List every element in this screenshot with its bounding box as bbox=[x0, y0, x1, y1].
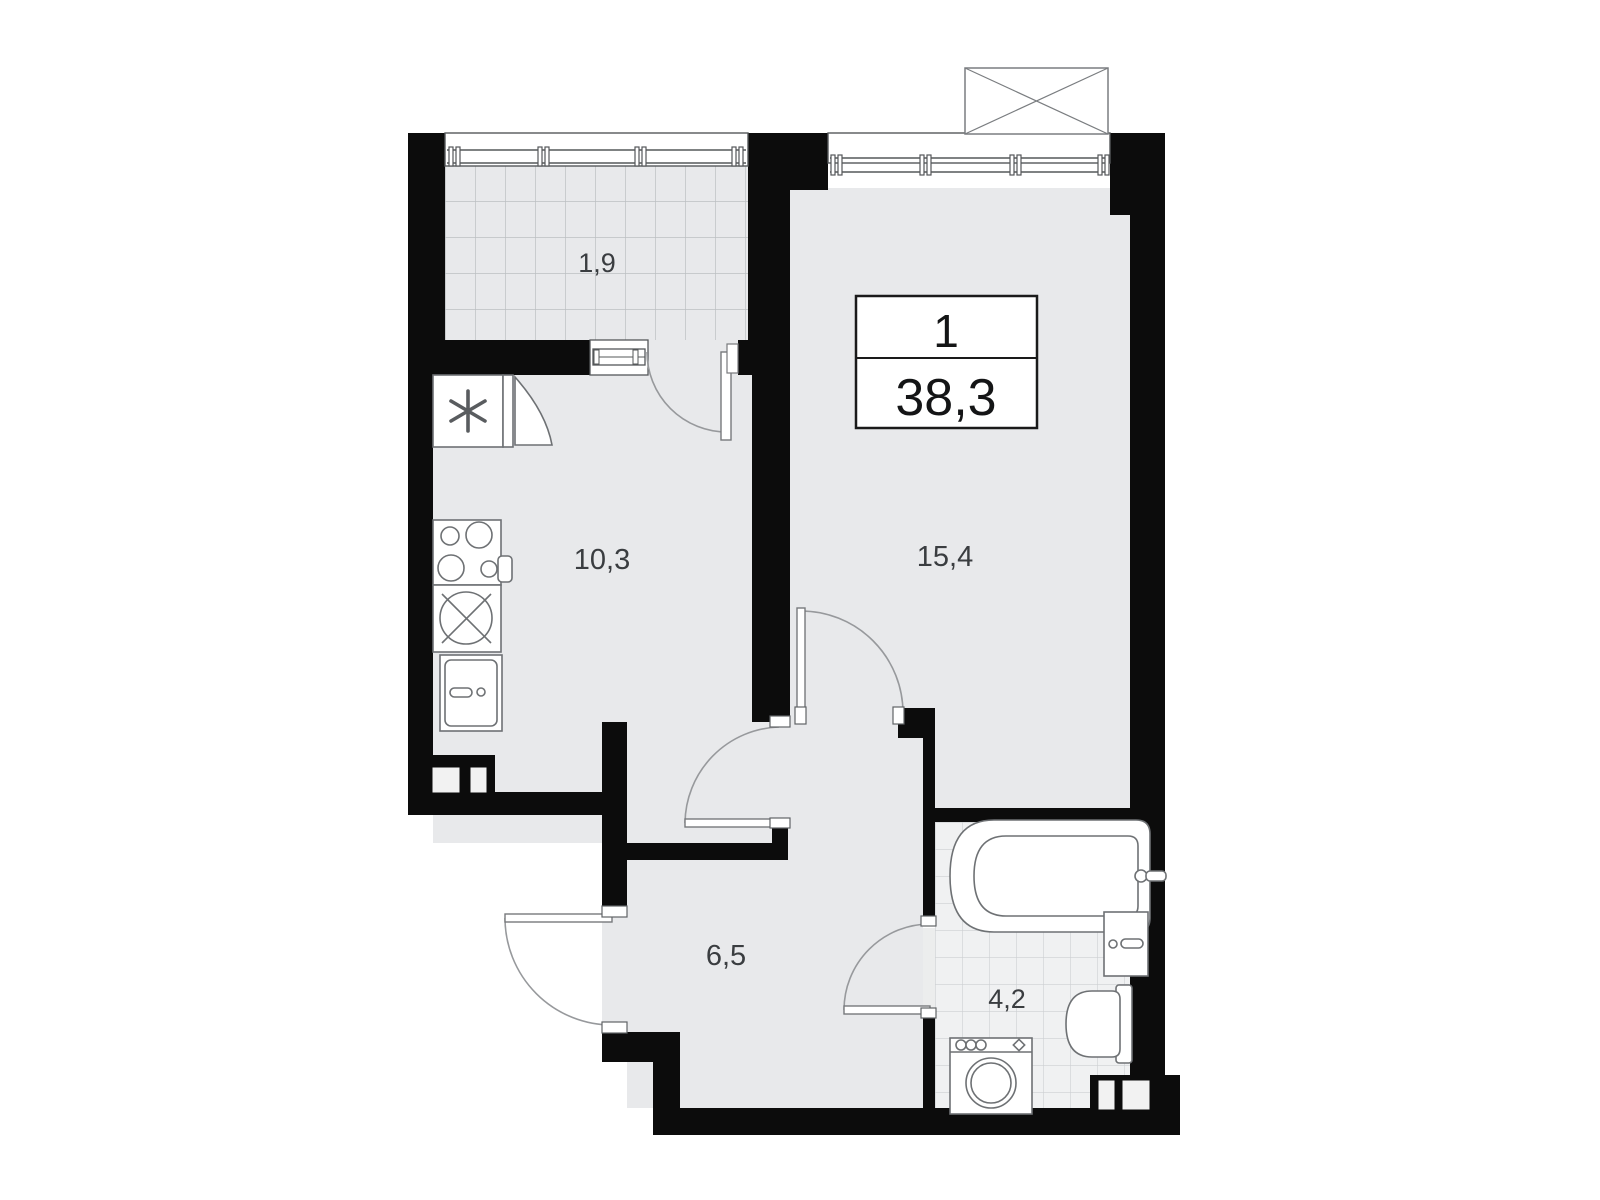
wall-right-outer bbox=[1130, 160, 1165, 1135]
wall-hall-left-upper bbox=[602, 722, 627, 913]
toilet-icon bbox=[1066, 985, 1132, 1063]
washing-machine-icon bbox=[950, 1038, 1032, 1114]
washbasin-icon bbox=[1104, 912, 1148, 976]
bath-door-threshold bbox=[923, 928, 935, 1018]
living-area-label: 15,4 bbox=[917, 541, 973, 573]
kitchen-sink-icon bbox=[433, 585, 501, 652]
bathroom-shaft-duct-icon bbox=[1098, 1080, 1115, 1110]
wall-step-horizontal bbox=[602, 1032, 680, 1062]
floor-plan-page: 1,9 10,3 15,4 6,5 4,2 1 38,3 bbox=[0, 0, 1600, 1200]
floor-plan-svg: 1,9 10,3 15,4 6,5 4,2 1 38,3 bbox=[0, 0, 1600, 1200]
kitchen-shaft-duct-icon bbox=[432, 767, 460, 793]
balcony-area-label: 1,9 bbox=[578, 248, 616, 278]
living-room-floor bbox=[790, 188, 1130, 808]
bathroom-shaft-duct-icon bbox=[1122, 1080, 1150, 1110]
kitchen-shaft-duct-icon bbox=[470, 767, 487, 793]
wall-kitchen-living-divider bbox=[752, 133, 790, 722]
wall-balcony-bottom-left bbox=[408, 340, 592, 375]
balcony-window-icon bbox=[445, 133, 748, 166]
wall-bath-left-mid bbox=[923, 822, 935, 922]
stove-icon bbox=[433, 520, 512, 585]
vent-box-icon bbox=[965, 68, 1108, 134]
kitchen-balcony-window-icon bbox=[590, 340, 648, 375]
wall-bath-left-upper bbox=[923, 727, 935, 822]
kitchen-area-label: 10,3 bbox=[574, 544, 630, 576]
wall-balcony-left bbox=[408, 133, 445, 375]
wall-left-outer bbox=[408, 375, 433, 755]
rooms-count-label: 1 bbox=[933, 305, 959, 357]
living-window-icon bbox=[828, 133, 1110, 175]
total-area-label: 38,3 bbox=[895, 369, 996, 427]
wall-kitchen-bottom bbox=[433, 792, 627, 815]
wall-bath-left-lower bbox=[923, 1016, 935, 1115]
kitchen-cabinet-icon bbox=[440, 655, 502, 731]
wall-niche-hallway bbox=[627, 843, 785, 860]
info-box: 1 38,3 bbox=[856, 296, 1037, 428]
bathroom-area-label: 4,2 bbox=[988, 984, 1026, 1014]
wall-step-vertical bbox=[653, 1062, 680, 1115]
hallway-area-label: 6,5 bbox=[706, 940, 746, 972]
entrance-threshold bbox=[602, 915, 627, 1027]
